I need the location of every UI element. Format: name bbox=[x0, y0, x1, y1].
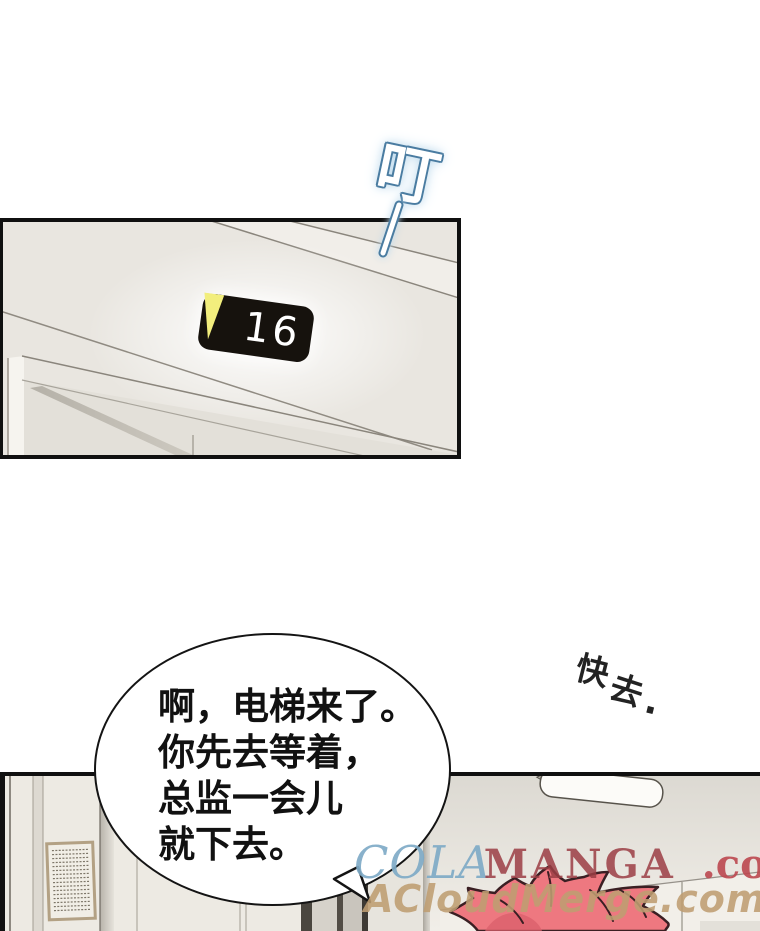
comic-page: { "sfx": { "ding": { "text": "叮" }, "hur… bbox=[0, 0, 760, 931]
door-frame-edge bbox=[8, 356, 24, 455]
wall-panel-band bbox=[33, 776, 43, 931]
speech-line: 你先去等着， bbox=[158, 730, 417, 776]
sfx-ding: 叮 bbox=[368, 122, 478, 267]
vent-grille bbox=[47, 842, 96, 920]
sfx-hurry: 快去. bbox=[571, 641, 660, 707]
sfx-slash-mark bbox=[374, 198, 414, 260]
speech-line: 啊，电梯来了。 bbox=[158, 684, 417, 730]
floor-number: 16 bbox=[241, 303, 304, 358]
watermark-line2: ACloudMerge.com bbox=[364, 877, 760, 921]
corner-shade bbox=[700, 921, 760, 931]
sfx-hurry-char1: 快 bbox=[572, 648, 613, 694]
speech-line: 总监一会儿 bbox=[158, 776, 417, 822]
